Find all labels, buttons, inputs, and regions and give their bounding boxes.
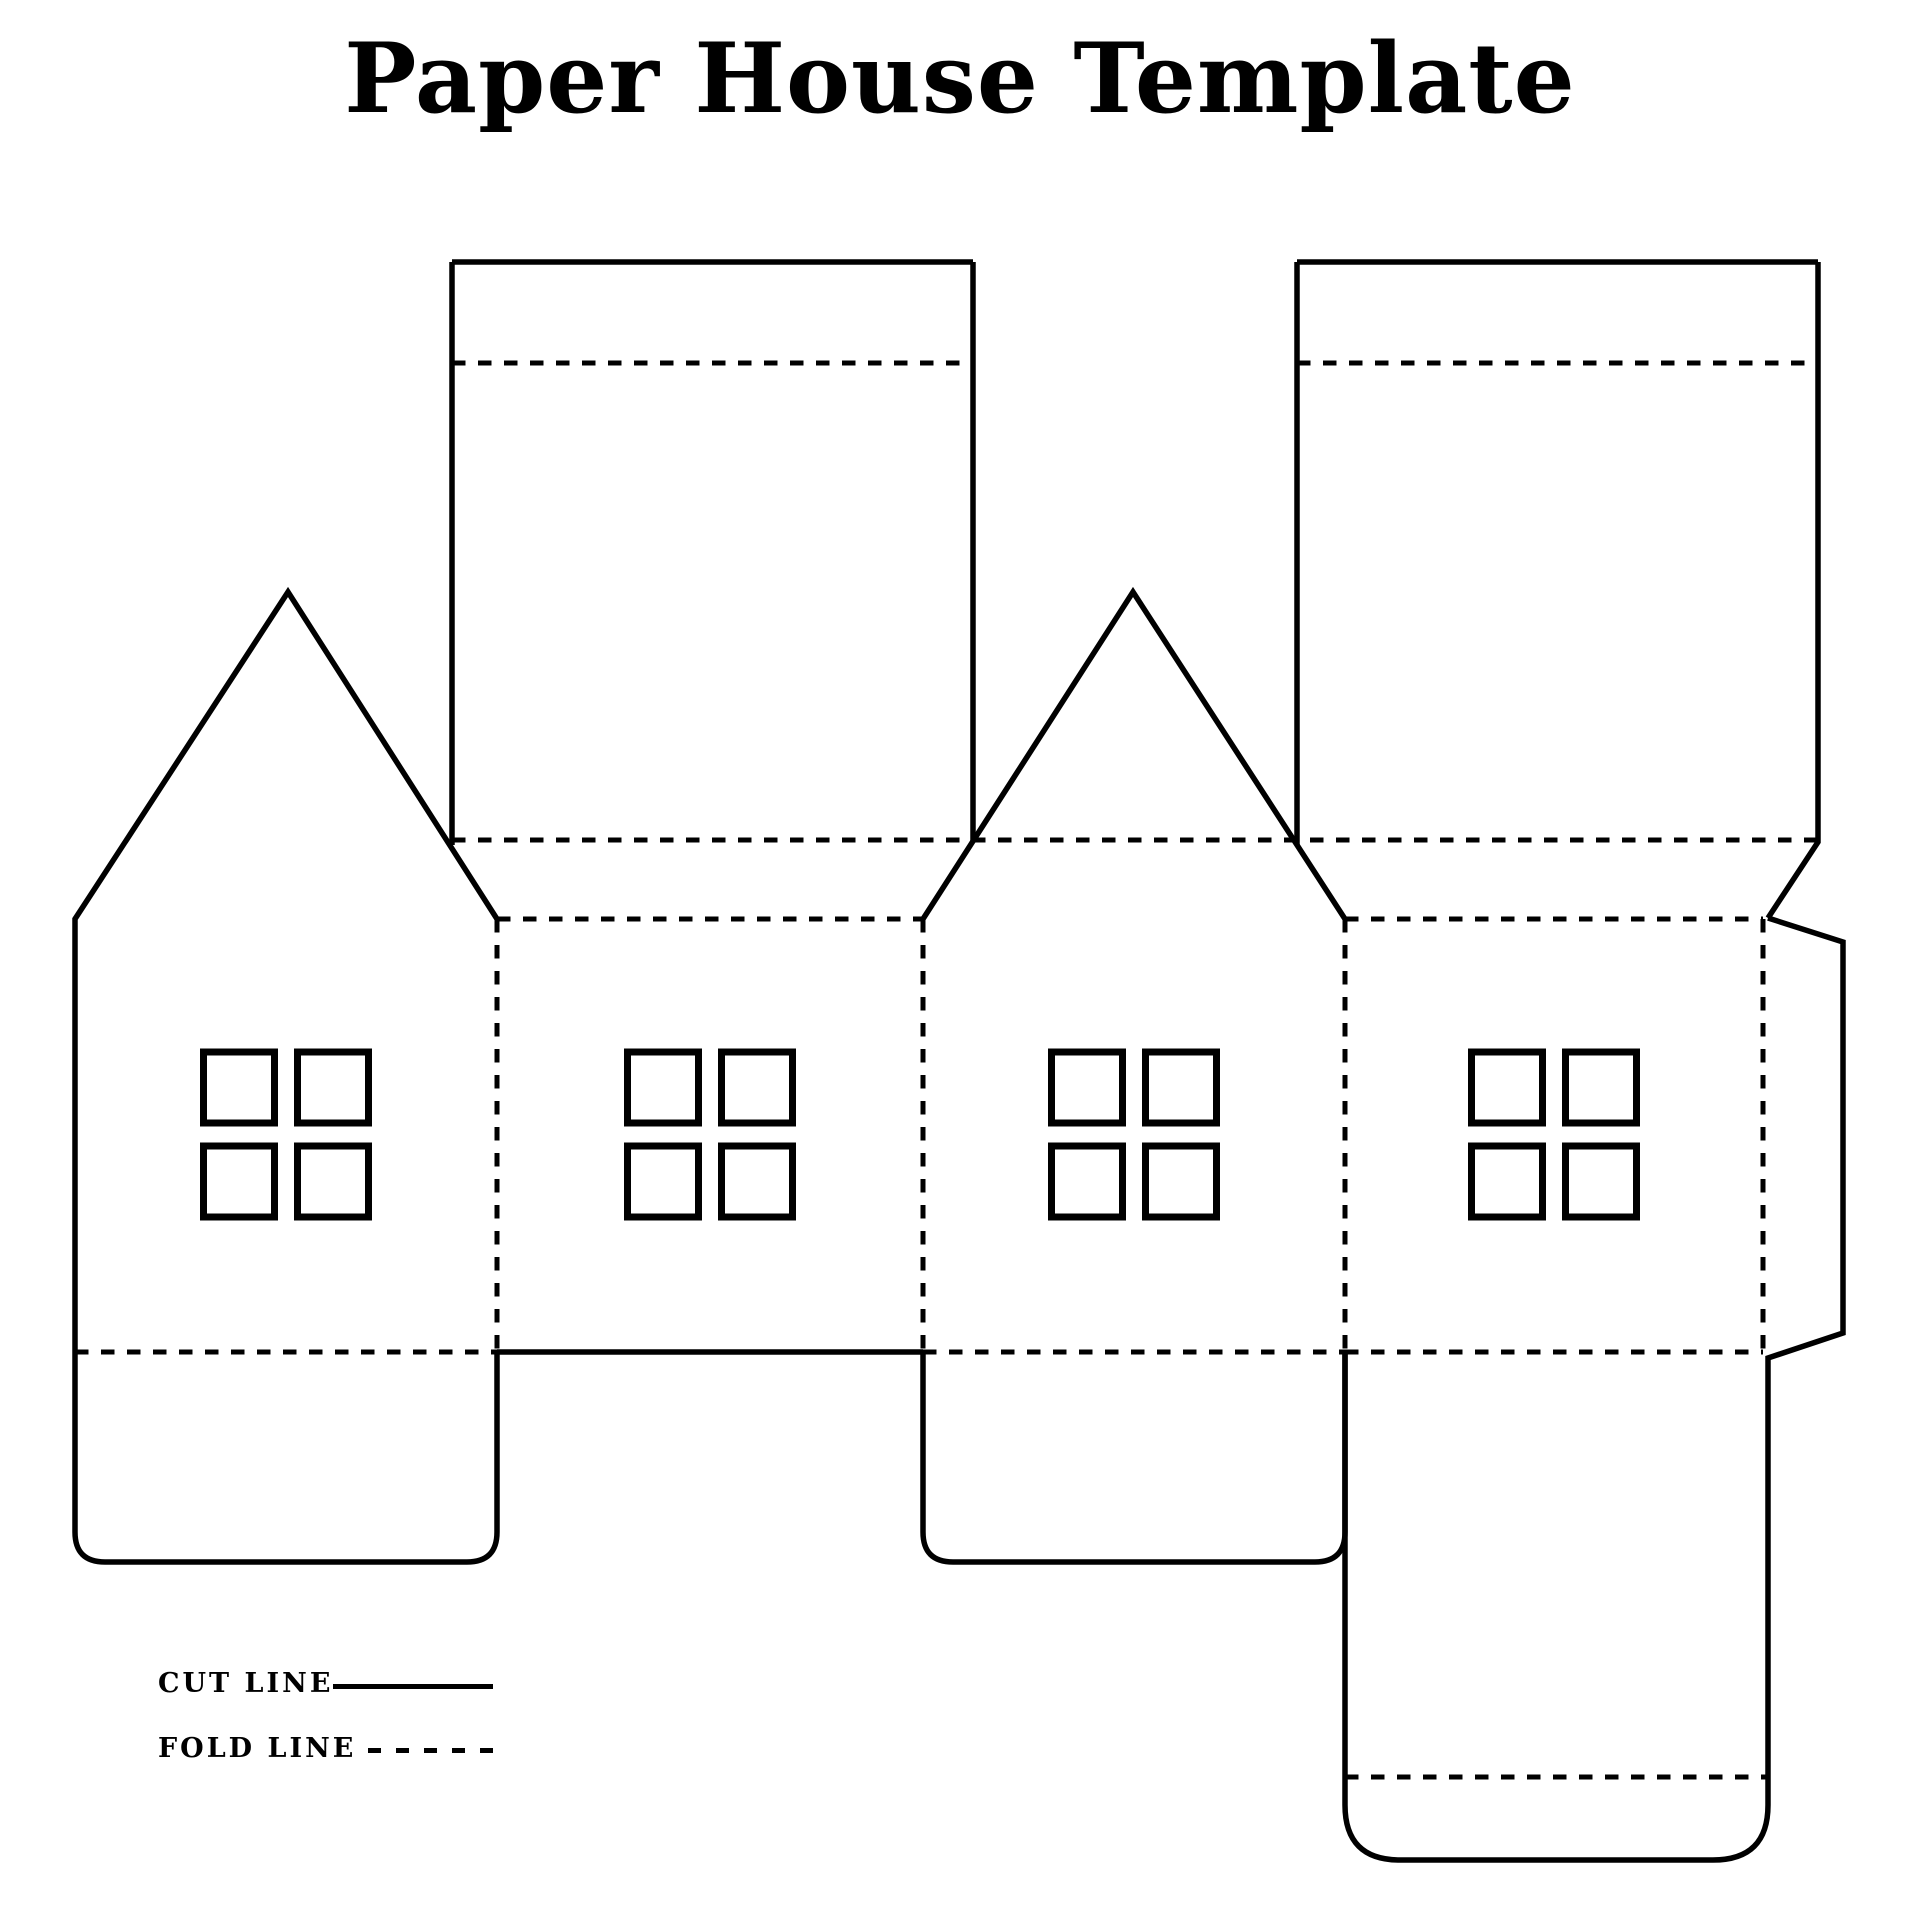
gable-wall-left-outline (75, 592, 497, 1562)
roof-panel-right (1297, 262, 1818, 918)
window-pane (1052, 1052, 1123, 1123)
fold-lines-group (75, 363, 1818, 1777)
windows-group (204, 1052, 1637, 1217)
window-pane (1566, 1146, 1637, 1217)
window-pane (722, 1052, 793, 1123)
bottom-flap-middle (923, 1352, 1345, 1562)
window-pane (628, 1146, 699, 1217)
window-pane (1052, 1146, 1123, 1217)
window-pane (298, 1146, 369, 1217)
dieline-drawing (0, 0, 1920, 1920)
window-pane (1472, 1052, 1543, 1123)
window-pane (204, 1146, 275, 1217)
roof-panel-left (452, 262, 973, 845)
gable-wall-middle-outline (923, 592, 1345, 919)
cut-lines-group (75, 262, 1843, 1860)
window-pane (1566, 1052, 1637, 1123)
window-pane (204, 1052, 275, 1123)
template-sheet: Paper House Template CUT LINE FOLD LINE (0, 0, 1920, 1920)
window-pane (722, 1146, 793, 1217)
glue-tab-and-base-outline (1345, 918, 1843, 1860)
window-pane (1472, 1146, 1543, 1217)
window-pane (1146, 1052, 1217, 1123)
window-pane (628, 1052, 699, 1123)
window-pane (1146, 1146, 1217, 1217)
window-pane (298, 1052, 369, 1123)
